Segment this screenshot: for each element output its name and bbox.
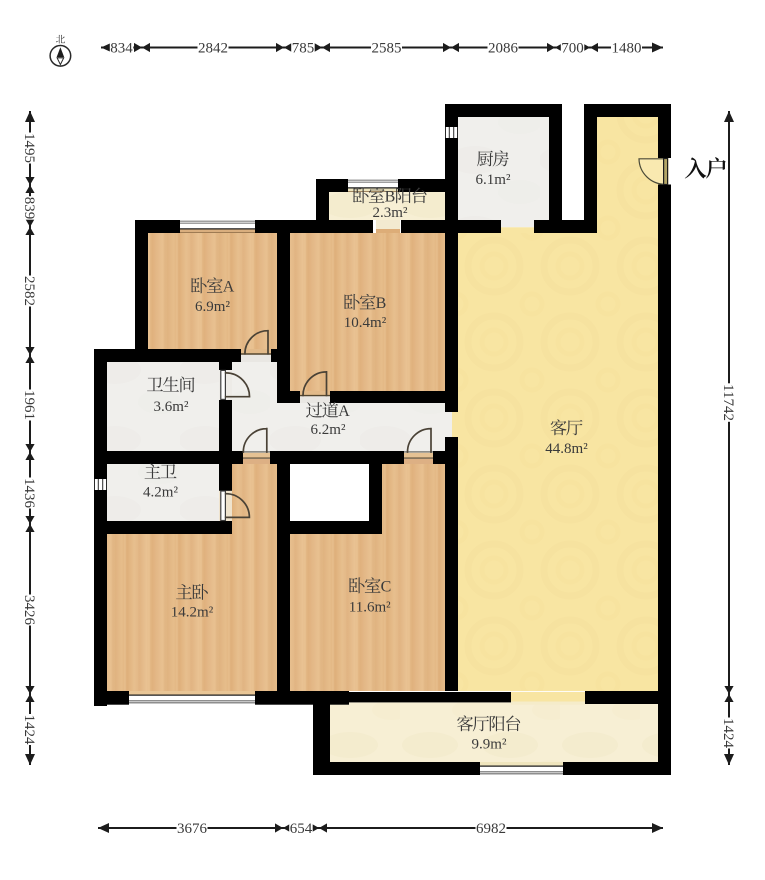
svg-text:3676: 3676 [177,821,208,837]
svg-text:C: C [381,579,392,596]
svg-text:6982: 6982 [476,821,506,837]
svg-text:700: 700 [561,41,584,57]
svg-text:3.6m²: 3.6m² [154,399,189,415]
svg-text:785: 785 [292,41,315,57]
svg-text:2086: 2086 [488,41,519,57]
svg-text:6.9m²: 6.9m² [195,299,230,315]
svg-text:B: B [385,189,396,206]
svg-text:1961: 1961 [21,390,37,420]
svg-text:2.3m²: 2.3m² [373,205,408,221]
svg-text:A: A [338,403,350,420]
svg-text:11.6m²: 11.6m² [349,600,391,616]
svg-text:B: B [376,295,387,312]
svg-text:44.8m²: 44.8m² [545,441,588,457]
svg-text:9.9m²: 9.9m² [472,737,507,753]
svg-text:2842: 2842 [198,41,228,57]
svg-text:1480: 1480 [612,41,642,57]
svg-text:1424: 1424 [21,715,37,746]
svg-text:839: 839 [21,197,37,220]
svg-text:2582: 2582 [21,276,37,306]
svg-text:4.2m²: 4.2m² [143,485,178,501]
svg-text:11742: 11742 [720,384,736,421]
svg-text:14.2m²: 14.2m² [171,605,214,621]
svg-text:654: 654 [290,821,313,837]
svg-text:10.4m²: 10.4m² [344,315,387,331]
svg-text:1436: 1436 [21,478,37,509]
svg-text:6.1m²: 6.1m² [476,172,511,188]
svg-text:834: 834 [110,41,133,57]
svg-text:2585: 2585 [372,41,402,57]
svg-text:3426: 3426 [21,595,37,626]
svg-text:A: A [223,279,235,296]
svg-text:1424: 1424 [720,718,736,749]
svg-text:1495: 1495 [21,133,37,163]
svg-text:6.2m²: 6.2m² [311,422,346,438]
